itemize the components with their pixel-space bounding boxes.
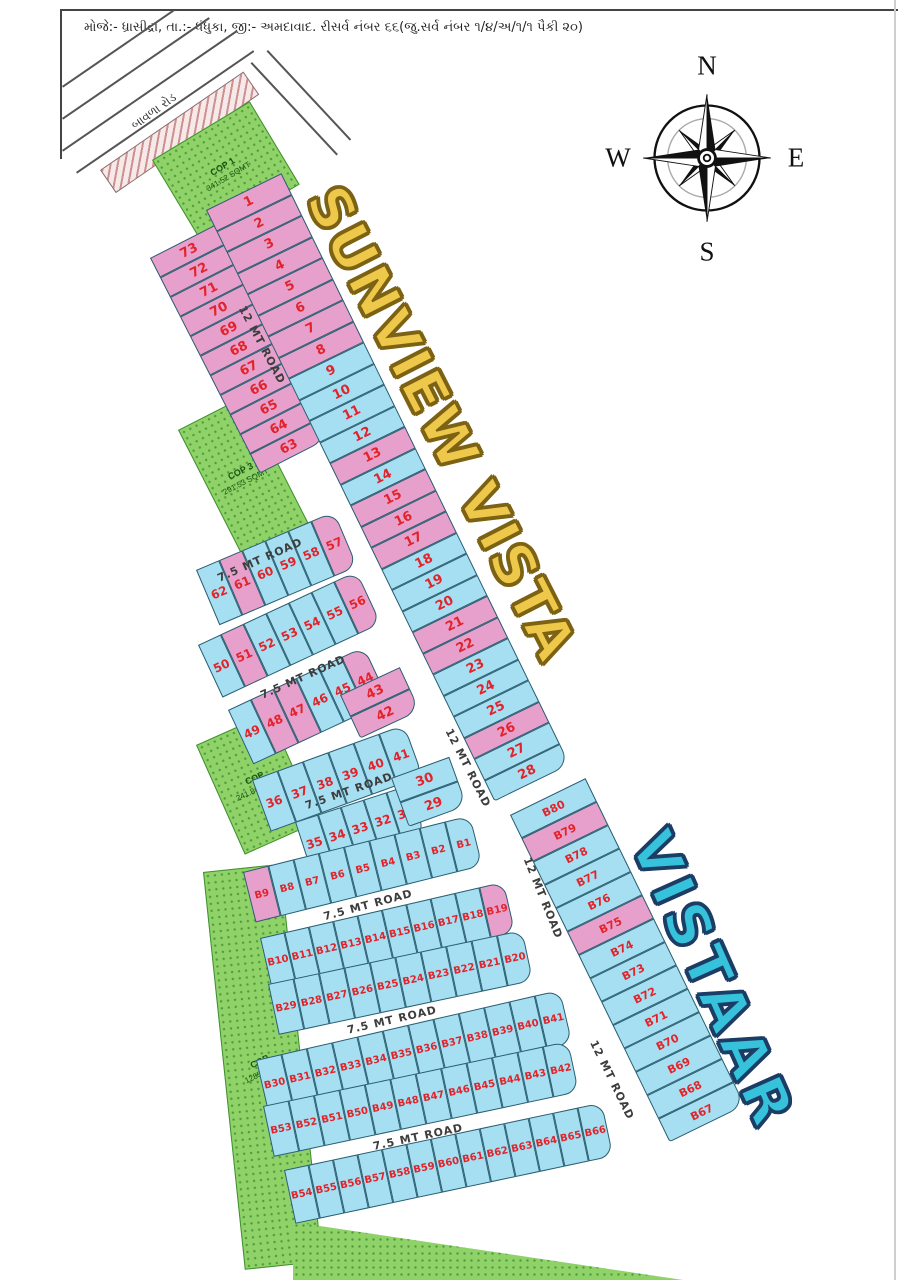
plot-layout-map: મોજે:- ધ્રાસીદ્રા, તા.:- ધંધુકા, જી:- અમ… — [0, 0, 904, 1280]
compass-rose-icon — [632, 83, 782, 233]
boundary-line-0 — [62, 9, 898, 11]
boundary-line-2 — [894, 0, 896, 1280]
compass-west-label: W — [605, 143, 630, 174]
compass-north-label: N — [697, 51, 717, 82]
compass-rose — [632, 83, 782, 233]
compass-south-label: S — [699, 237, 714, 268]
boundary-line-1 — [61, 9, 63, 159]
survey-header-text: મોજે:- ધ્રાસીદ્રા, તા.:- ધંધુકા, જી:- અમ… — [84, 20, 583, 35]
boundary-line-8 — [267, 50, 351, 140]
compass-east-label: E — [788, 143, 805, 174]
open-space-label: COP 1341.52 SQMT — [199, 150, 253, 195]
open-space-cop-bottom-wedge — [293, 1222, 683, 1280]
